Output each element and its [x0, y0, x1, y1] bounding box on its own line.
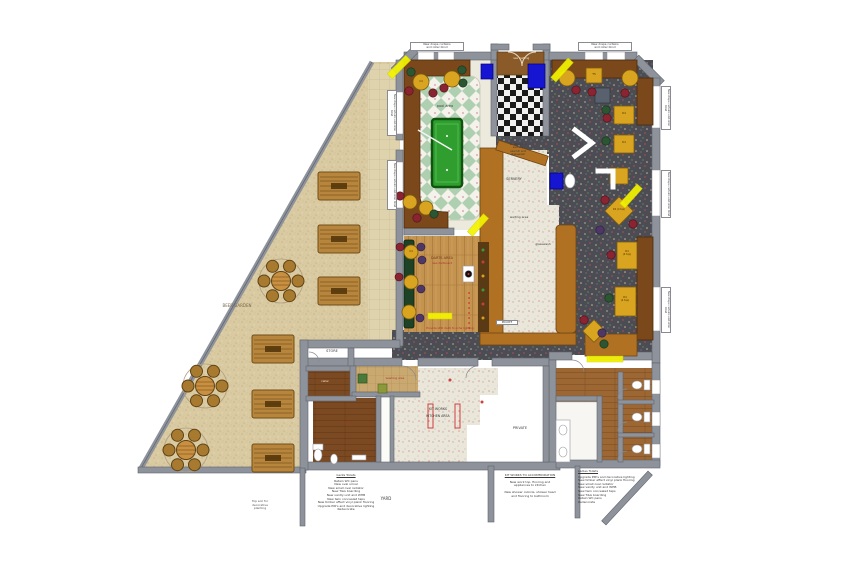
games-table [595, 88, 610, 103]
games-machine [481, 64, 493, 79]
table-d4 [615, 287, 636, 316]
washing-machine [358, 374, 367, 383]
round-table [622, 70, 638, 86]
wc-pan [632, 413, 642, 421]
poser-table [413, 74, 429, 90]
games-machine [550, 173, 563, 189]
gents-floor [313, 398, 379, 464]
lounge-right-booth-upper [637, 78, 653, 125]
poser-table [403, 195, 417, 209]
patio-slabs [368, 64, 400, 342]
basin [559, 425, 567, 435]
table-d4 [617, 242, 637, 269]
floor-plan-drawing [0, 0, 848, 565]
yard-wall-2 [575, 466, 580, 518]
radiator [352, 455, 366, 460]
table-d4 [614, 135, 634, 153]
lounge-right-booth-lower [637, 237, 653, 340]
wc-pan [632, 445, 642, 453]
marker-ladies [587, 356, 623, 362]
yard-wall-3 [300, 468, 305, 526]
bar-south-counter [480, 333, 576, 345]
table-d4 [614, 106, 634, 124]
pool-table [432, 119, 462, 187]
cellar-floor [306, 370, 352, 398]
floor-plan-canvas: BEER GARDEN Top soil for decorative plan… [0, 0, 848, 565]
yard-wall-1 [488, 466, 494, 522]
yard-diagonal-wall [602, 471, 653, 525]
games-machine [528, 64, 545, 88]
marker-darts [428, 313, 452, 319]
table-t5 [586, 68, 602, 83]
wc-pan [314, 449, 322, 461]
urinal [331, 454, 338, 464]
wc-pan [632, 381, 642, 389]
basin [559, 447, 567, 457]
washing-machine [378, 384, 387, 393]
bar-east-counter [556, 225, 576, 333]
water-heater [565, 174, 575, 188]
